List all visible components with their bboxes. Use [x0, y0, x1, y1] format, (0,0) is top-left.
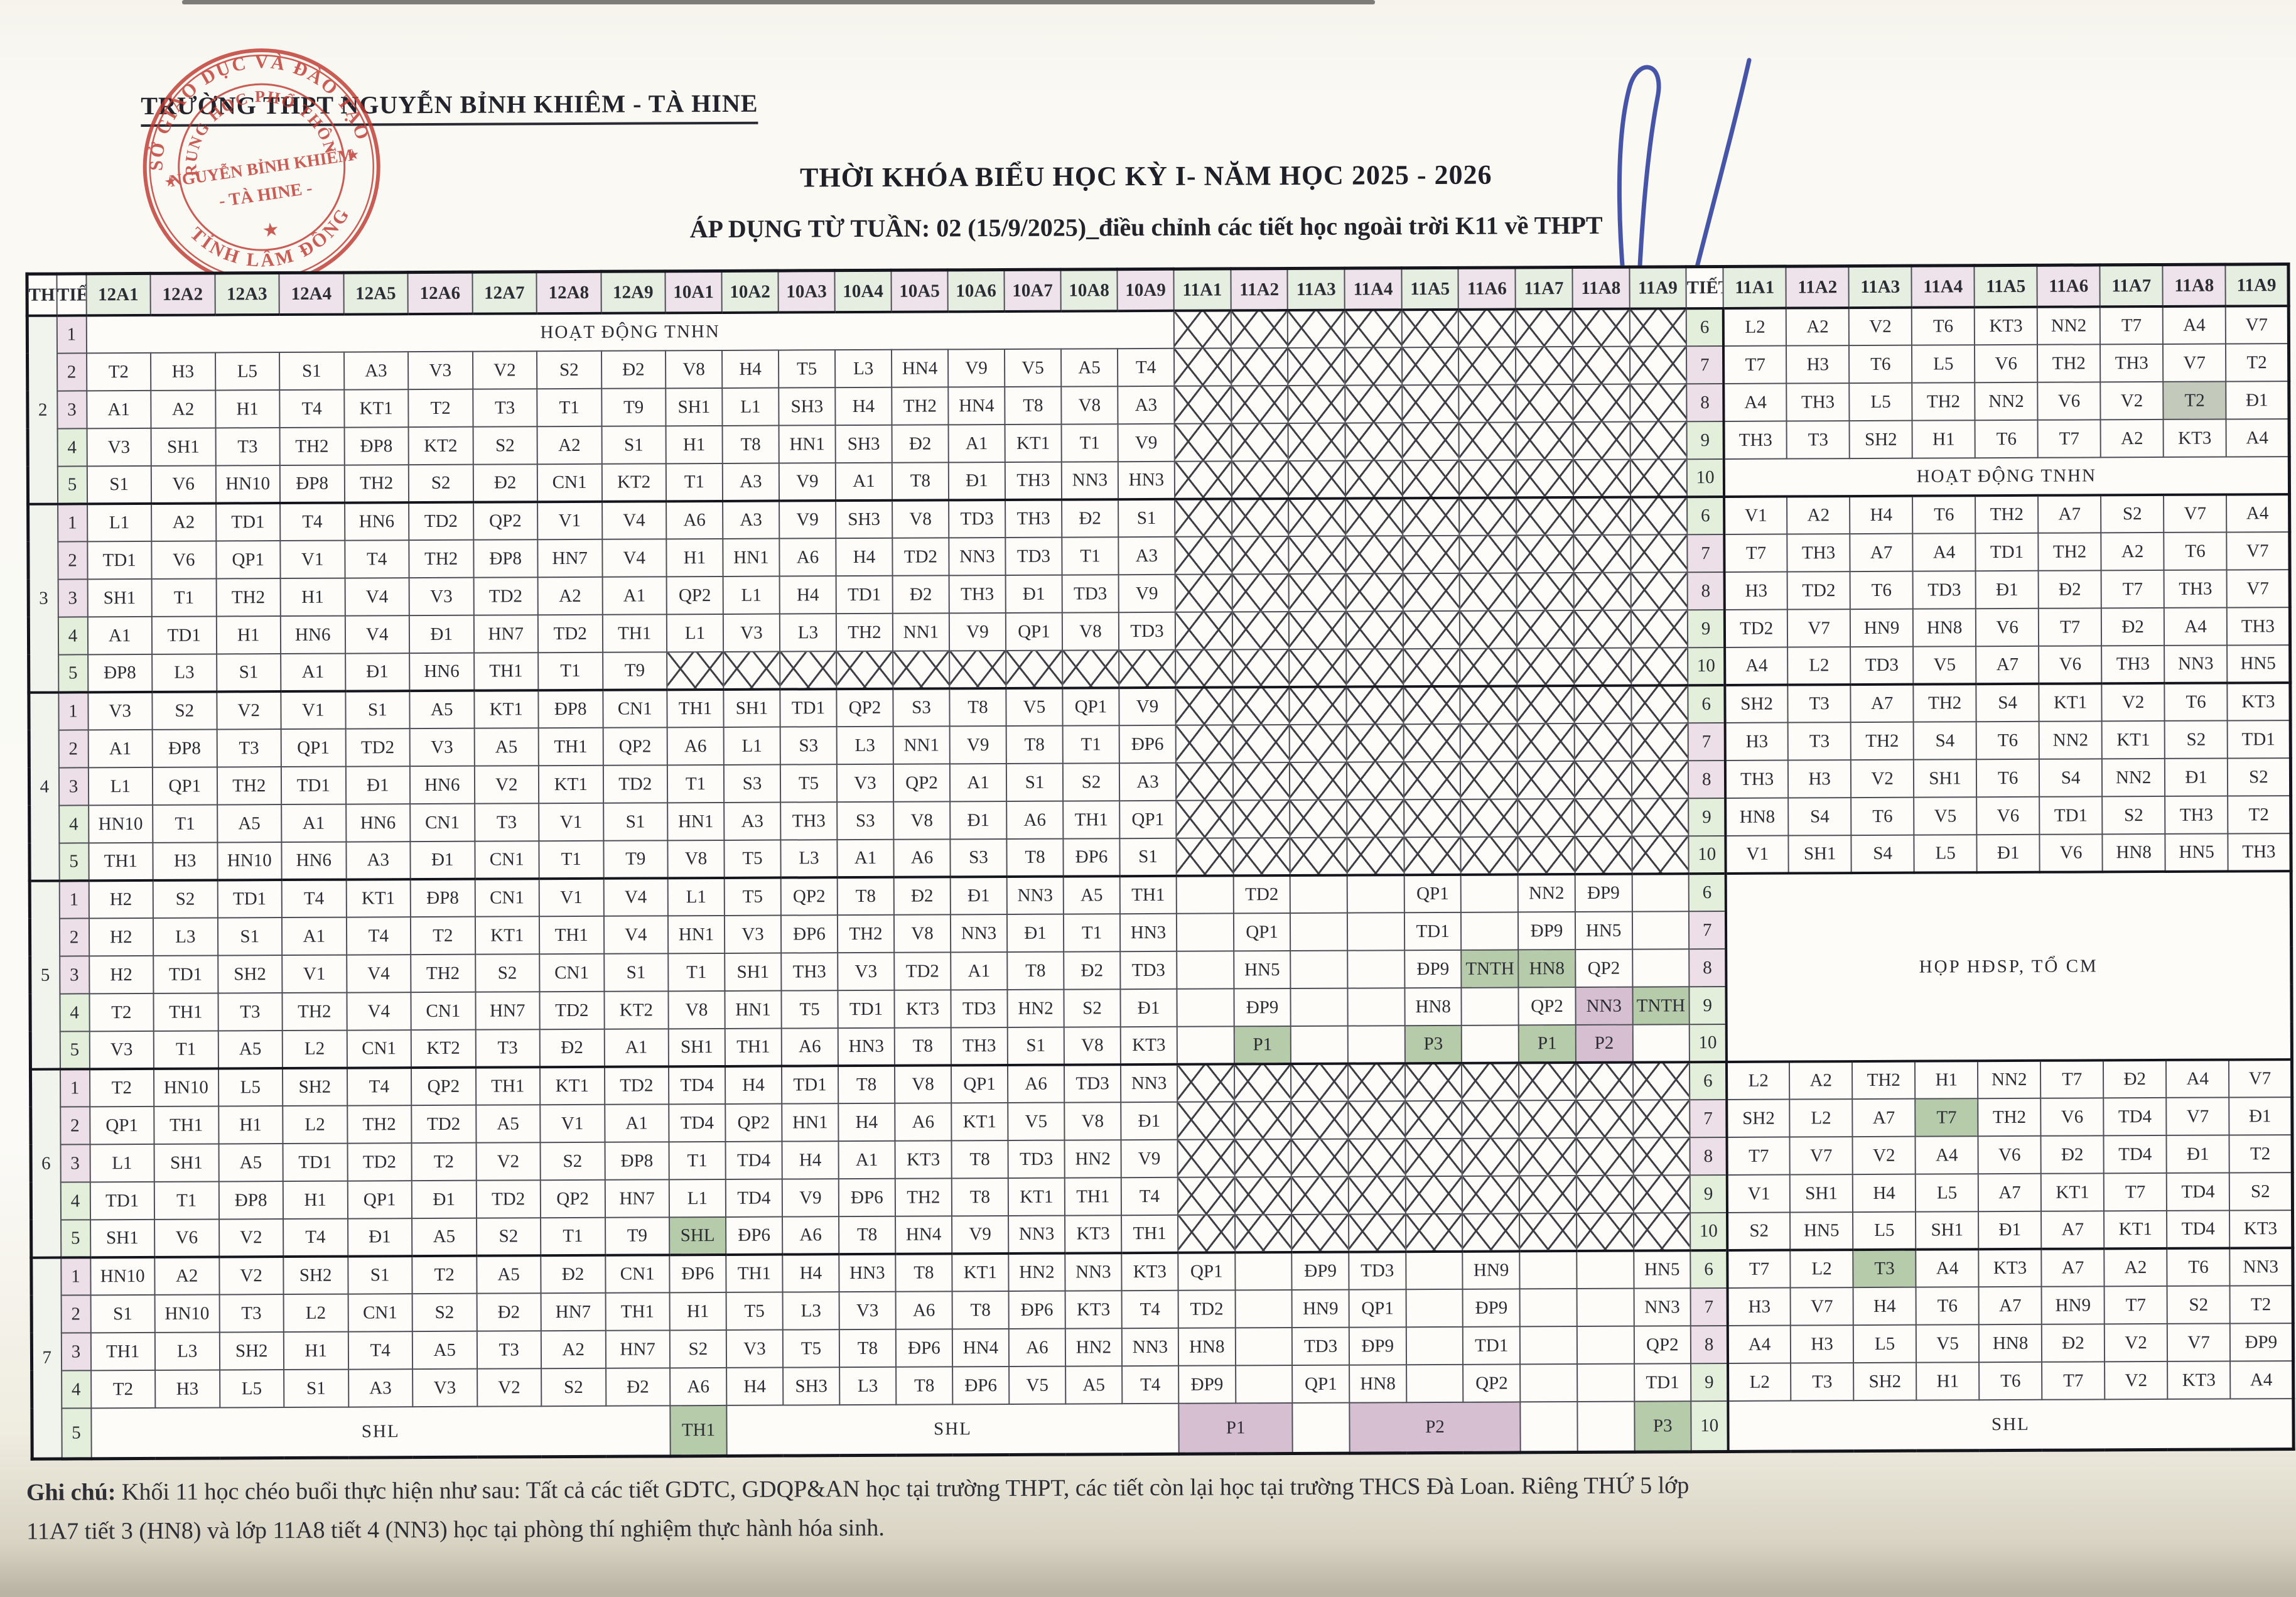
- subject-cell: T2: [408, 389, 473, 427]
- subject-cell: A1: [281, 654, 345, 691]
- subject-cell: V8: [893, 801, 950, 839]
- subject-cell: NN2: [1518, 874, 1575, 912]
- day-cell: 7: [31, 1258, 62, 1459]
- subject-cell: Đ2: [2101, 608, 2164, 646]
- subject-cell: NN3: [1065, 1253, 1121, 1291]
- subject-cell: T4: [345, 540, 409, 578]
- subject-cell: V8: [1061, 386, 1118, 424]
- subject-cell: L5: [1916, 1174, 1978, 1211]
- subject-cell: T3: [477, 1331, 541, 1368]
- subject-cell: TH1: [1120, 876, 1177, 914]
- subject-cell: QP1: [281, 729, 346, 767]
- subject-cell: T7: [2042, 1362, 2105, 1399]
- subject-cell: L2: [1790, 1250, 1853, 1287]
- subject-cell: KT3: [1121, 1027, 1177, 1064]
- subject-cell: SH1: [151, 428, 216, 465]
- period-cell-am: 4: [60, 1182, 90, 1220]
- subject-cell: HN9: [1292, 1290, 1349, 1328]
- subject-cell: T1: [539, 841, 603, 879]
- subject-cell: KT2: [604, 991, 669, 1029]
- col-header-class: 12A4: [279, 273, 343, 315]
- subject-cell: TH1: [90, 1333, 155, 1370]
- crossed-cell: [1346, 611, 1403, 649]
- subject-cell: H2: [89, 918, 153, 956]
- subject-cell: S2: [2102, 796, 2165, 834]
- subject-cell: TH2: [836, 614, 893, 651]
- subject-cell: T5: [781, 990, 838, 1028]
- subject-cell: A6: [670, 1368, 726, 1405]
- subject-cell: L5: [1849, 383, 1912, 421]
- subject-cell: V4: [603, 878, 668, 916]
- subject-cell: L1: [669, 1179, 726, 1217]
- crossed-cell: [1404, 799, 1461, 837]
- subject-cell: NN3: [951, 914, 1007, 952]
- crossed-cell: [1405, 1139, 1462, 1176]
- subject-cell: HN3: [1120, 914, 1177, 951]
- crossed-cell: [1290, 838, 1347, 875]
- subject-cell: HN10: [90, 1257, 155, 1295]
- subject-cell: T8: [1007, 952, 1064, 990]
- subject-cell: ĐP8: [153, 729, 217, 767]
- subject-cell: [1406, 1365, 1463, 1402]
- subject-cell: A1: [602, 577, 667, 614]
- crossed-cell: [1404, 762, 1461, 799]
- subject-cell: T8: [839, 1329, 896, 1367]
- subject-cell: A4: [2163, 306, 2226, 344]
- subject-cell: T1: [669, 1142, 726, 1179]
- subject-cell: V9: [1121, 1140, 1177, 1177]
- subject-cell: Đ2: [473, 464, 537, 502]
- subject-cell: KT1: [952, 1253, 1008, 1291]
- subject-cell: TD3: [949, 500, 1005, 538]
- subject-cell: V6: [1975, 345, 2037, 382]
- subject-cell: L3: [783, 1292, 839, 1329]
- period-cell-am: 1: [59, 880, 89, 918]
- subject-cell: KT1: [474, 690, 539, 728]
- crossed-cell: [1403, 573, 1460, 611]
- subject-cell: A3: [723, 501, 779, 539]
- subject-cell: V2: [1853, 1137, 1916, 1174]
- crossed-cell: [1291, 1102, 1349, 1139]
- subject-cell: Đ1: [409, 615, 474, 653]
- subject-cell: KT3: [895, 1140, 951, 1178]
- subject-cell: Đ1: [950, 801, 1006, 839]
- crossed-cell: [1290, 762, 1347, 800]
- col-header-class: 11A5: [1401, 268, 1458, 310]
- crossed-cell: [1575, 799, 1632, 836]
- subject-cell: SH2: [219, 1332, 284, 1370]
- subject-cell: T1: [538, 652, 603, 690]
- subject-cell: S1: [1119, 838, 1176, 876]
- subject-cell: ĐP8: [605, 1142, 669, 1179]
- subject-cell: A2: [538, 577, 603, 615]
- subject-cell: A3: [1118, 386, 1174, 424]
- subject-cell: ĐP6: [669, 1255, 726, 1292]
- crossed-cell: [1631, 647, 1688, 685]
- subject-cell: SH1: [669, 1029, 725, 1066]
- subject-cell: TH1: [726, 1255, 782, 1292]
- subject-cell: H4: [726, 1368, 783, 1405]
- subject-cell: Đ2: [1062, 499, 1118, 537]
- subject-cell: A2: [154, 1257, 219, 1294]
- subject-cell: T4: [1121, 1177, 1178, 1215]
- subject-cell: TD3: [1008, 1140, 1064, 1178]
- subject-cell: TH3: [949, 575, 1006, 613]
- subject-cell: T3: [1853, 1250, 1916, 1287]
- crossed-cell: [1178, 1215, 1235, 1252]
- subject-cell: SH1: [1916, 1211, 1978, 1249]
- crossed-cell: [667, 652, 723, 690]
- col-header-class: 12A2: [150, 273, 215, 315]
- subject-cell: ĐP6: [952, 1367, 1009, 1404]
- crossed-cell: [1348, 1101, 1405, 1139]
- subject-cell: [1577, 1364, 1634, 1402]
- subject-cell: T9: [605, 1217, 670, 1255]
- crossed-cell: [1460, 535, 1517, 573]
- subject-cell: [1177, 951, 1234, 988]
- subject-cell: T7: [2040, 1060, 2103, 1098]
- subject-cell: T6: [1916, 1287, 1979, 1324]
- subject-cell: SHL: [91, 1405, 671, 1458]
- subject-cell: T1: [1062, 424, 1118, 462]
- period-cell-pm: 8: [1689, 949, 1726, 987]
- crossed-cell: [1573, 384, 1630, 422]
- subject-cell: V6: [2040, 1098, 2103, 1135]
- subject-cell: KT3: [1978, 1249, 2041, 1287]
- subject-cell: V7: [2166, 1097, 2229, 1135]
- subject-cell: V2: [2102, 683, 2165, 721]
- crossed-cell: [1288, 499, 1345, 536]
- subject-cell: T4: [347, 1068, 411, 1105]
- subject-cell: A4: [2230, 1361, 2293, 1399]
- crossed-cell: [1406, 1176, 1463, 1214]
- crossed-cell: [1573, 535, 1630, 573]
- subject-cell: Đ2: [606, 1368, 671, 1405]
- subject-cell: A5: [1065, 1366, 1122, 1404]
- subject-cell: T3: [1788, 685, 1851, 722]
- subject-cell: QP2: [1463, 1364, 1520, 1402]
- crossed-cell: [1404, 837, 1461, 875]
- subject-cell: ĐP8: [88, 654, 153, 692]
- crossed-cell: [1177, 1064, 1234, 1102]
- crossed-cell: [1631, 723, 1688, 761]
- subject-cell: TH3: [2228, 833, 2291, 871]
- subject-cell: A5: [1064, 876, 1120, 914]
- subject-cell: T9: [603, 652, 667, 690]
- crossed-cell: [1347, 799, 1404, 837]
- subject-cell: TD1: [153, 955, 218, 993]
- col-header-class: 11A3: [1849, 266, 1912, 308]
- subject-cell: L2: [1727, 1062, 1789, 1100]
- crossed-cell: [1633, 1100, 1690, 1137]
- subject-cell: V5: [1006, 688, 1062, 726]
- col-header-class: 12A5: [343, 273, 408, 315]
- subject-cell: H2: [89, 956, 154, 993]
- subject-cell: TH2: [838, 915, 894, 953]
- subject-cell: HN1: [779, 425, 836, 463]
- subject-cell: Đ1: [1978, 1211, 2041, 1249]
- subject-cell: T6: [1979, 1362, 2042, 1400]
- subject-cell: V2: [217, 691, 281, 729]
- subject-cell: HN1: [782, 1103, 838, 1141]
- crossed-cell: [1232, 649, 1290, 687]
- subject-cell: ĐP9: [1404, 950, 1462, 988]
- subject-cell: L1: [724, 727, 780, 765]
- subject-cell: H4: [1853, 1287, 1916, 1325]
- crossed-cell: [1573, 460, 1630, 497]
- crossed-cell: [1345, 423, 1403, 460]
- subject-cell: TH1: [539, 916, 604, 954]
- subject-cell: ĐP6: [1009, 1291, 1065, 1329]
- subject-cell: HN8: [1349, 1365, 1406, 1402]
- period-cell-pm: 9: [1687, 421, 1724, 459]
- subject-cell: ĐP9: [1575, 874, 1632, 912]
- subject-cell: [1577, 1326, 1634, 1364]
- subject-cell: T7: [1727, 1137, 1790, 1175]
- crossed-cell: [1175, 612, 1232, 649]
- crossed-cell: [1290, 687, 1347, 725]
- subject-cell: P2: [1349, 1402, 1520, 1453]
- subject-cell: HN1: [667, 803, 724, 840]
- subject-cell: KT1: [1008, 1178, 1065, 1216]
- subject-cell: TH2: [1978, 1098, 2040, 1136]
- subject-cell: V1: [539, 803, 603, 841]
- subject-cell: TD2: [1178, 1290, 1236, 1328]
- subject-cell: A2: [151, 390, 215, 428]
- subject-cell: S2: [477, 1218, 541, 1255]
- subject-cell: S1: [217, 918, 282, 955]
- subject-cell: TD1: [2228, 720, 2290, 758]
- subject-cell: V7: [1791, 1287, 1853, 1325]
- crossed-cell: [1459, 497, 1516, 535]
- subject-cell: Đ1: [410, 842, 475, 879]
- subject-cell: TD1: [2039, 796, 2102, 834]
- subject-cell: QP1: [216, 541, 281, 578]
- subject-cell: L3: [780, 614, 836, 651]
- subject-cell: V1: [282, 955, 347, 993]
- subject-cell: ĐP9: [1463, 1289, 1520, 1326]
- subject-cell: A1: [88, 730, 153, 767]
- subject-cell: S1: [284, 1370, 348, 1407]
- subject-cell: T6: [2165, 683, 2228, 721]
- subject-cell: HN8: [2103, 834, 2165, 872]
- subject-cell: HN10: [215, 465, 280, 503]
- subject-cell: QP1: [1119, 801, 1176, 838]
- subject-cell: TD2: [347, 1143, 412, 1181]
- subject-cell: HN6: [345, 502, 409, 540]
- crossed-cell: [1347, 724, 1404, 762]
- subject-cell: TD1: [283, 1144, 348, 1181]
- subject-cell: NN1: [893, 726, 950, 764]
- subject-cell: T2: [87, 353, 151, 391]
- subject-cell: V3: [725, 916, 781, 953]
- subject-cell: Đ1: [951, 877, 1007, 914]
- subject-cell: TH2: [2037, 344, 2100, 382]
- subject-cell: A6: [782, 1028, 838, 1066]
- subject-cell: T5: [783, 1329, 839, 1367]
- subject-cell: T2: [2228, 796, 2290, 833]
- col-header-class: 12A7: [472, 272, 537, 314]
- subject-cell: A6: [782, 1216, 839, 1254]
- crossed-cell: [1630, 459, 1687, 497]
- subject-cell: KT1: [540, 1067, 605, 1105]
- subject-cell: V6: [151, 541, 216, 578]
- crossed-cell: [1348, 1063, 1405, 1101]
- subject-cell: [1235, 1252, 1292, 1290]
- subject-cell: NN2: [2039, 721, 2102, 759]
- subject-cell: A5: [474, 728, 539, 766]
- crossed-cell: [1405, 1101, 1462, 1139]
- subject-cell: V3: [839, 1292, 896, 1329]
- subject-cell: V3: [726, 1330, 783, 1368]
- subject-cell: S4: [1914, 722, 1976, 759]
- subject-cell: A1: [838, 1141, 895, 1179]
- crossed-cell: [1234, 1102, 1291, 1139]
- crossed-cell: [1231, 310, 1288, 348]
- subject-cell: L5: [218, 1068, 283, 1106]
- subject-cell: Đ1: [2229, 1097, 2292, 1135]
- subject-cell: T3: [215, 428, 280, 465]
- crossed-cell: [1519, 1213, 1576, 1251]
- subject-cell: TD4: [2104, 1135, 2167, 1173]
- crossed-cell: [1235, 1215, 1292, 1252]
- crossed-cell: [1175, 687, 1232, 725]
- subject-cell: TH2: [411, 955, 475, 992]
- subject-cell: HN3: [838, 1028, 895, 1066]
- subject-cell: V4: [602, 501, 667, 539]
- subject-cell: V8: [667, 840, 724, 878]
- legend-text-2: 11A7 tiết 3 (HN8) và lớp 11A8 tiết 4 (NN…: [26, 1515, 885, 1545]
- subject-cell: S3: [950, 839, 1006, 877]
- crossed-cell: [1460, 610, 1517, 648]
- subject-cell: V4: [345, 615, 409, 653]
- subject-cell: QP2: [1519, 987, 1576, 1025]
- crossed-cell: [1234, 1139, 1291, 1177]
- subject-cell: NN1: [893, 613, 949, 651]
- subject-cell: T4: [346, 917, 411, 955]
- subject-cell: QP2: [411, 1068, 476, 1105]
- subject-cell: TD2: [1233, 875, 1290, 913]
- subject-cell: T3: [475, 803, 539, 841]
- subject-cell: S2: [2101, 495, 2164, 533]
- subject-cell: ĐP6: [1063, 838, 1119, 876]
- subject-cell: [1291, 988, 1348, 1026]
- subject-cell: [1520, 1289, 1577, 1326]
- crossed-cell: [1459, 422, 1516, 460]
- subject-cell: A4: [2226, 494, 2289, 532]
- svg-text:★: ★: [261, 219, 281, 242]
- period-cell-am: 1: [57, 315, 86, 353]
- subject-cell: V7: [2164, 495, 2226, 533]
- subject-cell: H4: [782, 1141, 839, 1179]
- subject-cell: A3: [348, 1369, 413, 1407]
- subject-cell: HN8: [1913, 609, 1976, 646]
- subject-cell: A1: [951, 952, 1007, 990]
- day-cell: 6: [30, 1069, 60, 1258]
- subject-cell: L1: [87, 504, 152, 541]
- crossed-cell: [1006, 651, 1062, 688]
- subject-cell: [1576, 1251, 1634, 1289]
- subject-cell: V2: [2100, 382, 2163, 420]
- crossed-cell: [1403, 498, 1460, 536]
- subject-cell: QP1: [90, 1107, 154, 1144]
- subject-cell: L2: [1728, 1363, 1791, 1401]
- subject-cell: V2: [219, 1257, 284, 1294]
- crossed-cell: [1288, 386, 1345, 423]
- subject-cell: T3: [473, 389, 537, 426]
- period-cell-am: 5: [62, 1408, 91, 1458]
- subject-cell: HOẠT ĐỘNG TNHN: [1724, 457, 2289, 497]
- subject-cell: S1: [345, 691, 410, 728]
- subject-cell: S3: [837, 802, 893, 840]
- crossed-cell: [1518, 836, 1575, 874]
- period-cell-am: 2: [58, 541, 87, 579]
- crossed-cell: [1629, 308, 1686, 346]
- subject-cell: KT3: [1065, 1291, 1122, 1328]
- subject-cell: T3: [1787, 421, 1850, 458]
- subject-cell: TH3: [951, 1027, 1008, 1065]
- subject-cell: KT3: [1121, 1253, 1178, 1291]
- subject-cell: ĐP9: [1518, 912, 1575, 950]
- col-header-class: 11A7: [1516, 268, 1573, 310]
- subject-cell: [1347, 950, 1404, 988]
- subject-cell: T6: [1976, 722, 2039, 759]
- subject-cell: T8: [723, 426, 779, 463]
- subject-cell: T2: [2163, 382, 2226, 420]
- svg-text:★: ★: [163, 173, 178, 190]
- col-header-class: 12A9: [601, 271, 666, 313]
- crossed-cell: [1231, 386, 1288, 423]
- scanned-page: TRƯỜNG THPT NGUYỄN BỈNH KHIÊM - TÀ HINE …: [0, 0, 2296, 1592]
- subject-cell: [1290, 913, 1347, 951]
- crossed-cell: [1633, 1137, 1690, 1175]
- period-cell-pm: 6: [1687, 497, 1724, 534]
- subject-cell: V4: [603, 916, 668, 953]
- subject-cell: HN6: [281, 842, 346, 880]
- subject-cell: S2: [541, 1368, 606, 1406]
- day-cell: 4: [29, 693, 59, 881]
- subject-cell: T2: [412, 1256, 477, 1294]
- subject-cell: NN3: [2164, 646, 2227, 683]
- subject-cell: TD1: [281, 767, 346, 804]
- period-cell-pm: 9: [1688, 798, 1725, 836]
- crossed-cell: [1401, 310, 1458, 347]
- subject-cell: [1632, 949, 1690, 987]
- subject-cell: T8: [952, 1291, 1009, 1329]
- crossed-cell: [1462, 1176, 1519, 1213]
- subject-cell: A4: [1912, 533, 1975, 571]
- subject-cell: QP2: [541, 1180, 605, 1218]
- crossed-cell: [1519, 1138, 1576, 1176]
- crossed-cell: [1291, 1139, 1349, 1177]
- subject-cell: L3: [155, 1332, 220, 1370]
- subject-cell: A5: [217, 804, 282, 842]
- subject-cell: TH3: [1724, 421, 1787, 459]
- period-cell-pm: 9: [1688, 610, 1725, 647]
- subject-cell: A2: [2104, 1248, 2167, 1286]
- subject-cell: Đ2: [541, 1255, 605, 1293]
- crossed-cell: [1177, 1139, 1234, 1177]
- subject-cell: T3: [218, 993, 283, 1031]
- subject-cell: V3: [837, 764, 893, 802]
- crossed-cell: [1461, 836, 1518, 874]
- subject-cell: V7: [2226, 532, 2289, 570]
- period-cell-am: 2: [60, 1107, 90, 1144]
- subject-cell: CN1: [605, 1255, 670, 1292]
- subject-cell: T1: [537, 389, 601, 426]
- subject-cell: T7: [1724, 534, 1787, 572]
- subject-cell: KT2: [409, 427, 473, 465]
